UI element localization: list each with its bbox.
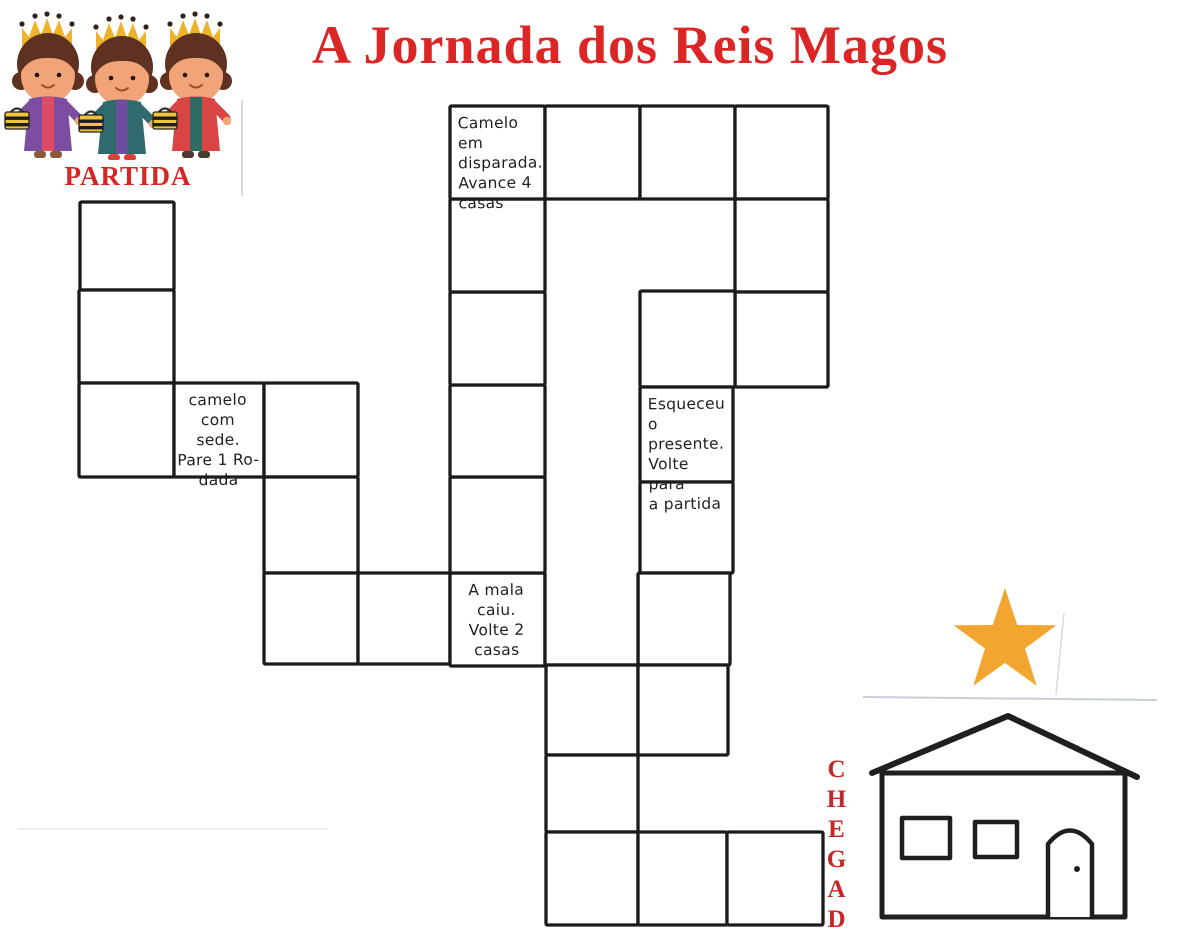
board-cell-f8 [546, 755, 638, 832]
board-cell-e4 [450, 385, 545, 477]
board-cell-h9 [727, 832, 823, 925]
board-cell-c5 [264, 477, 358, 573]
house-roof [872, 716, 1137, 777]
board-cell-g7 [638, 665, 728, 755]
board-cell-e5 [450, 477, 545, 573]
king-figure-1 [5, 11, 84, 158]
cell-instruction-forgot-gift: Esqueceuo presente.Volte paraa partida [643, 391, 729, 479]
board-cell-d6 [358, 573, 450, 664]
board-cell-g6 [638, 573, 730, 665]
bethlehem-house-illustration [872, 716, 1137, 917]
scan-artifact-line [18, 828, 328, 830]
cell-instruction-camel-thirsty: camelo comsede.Pare 1 Ro-dada [177, 387, 260, 474]
scan-artifact-line [1056, 613, 1064, 695]
board-cell-h3 [735, 292, 828, 387]
door-knob [1074, 866, 1080, 872]
page-title: A Jornada dos Reis Magos [270, 14, 990, 76]
star-of-bethlehem-icon [954, 588, 1057, 686]
house-door [1048, 831, 1092, 918]
board-cell-f9 [546, 832, 638, 925]
board-cell-f1 [545, 106, 640, 199]
cell-instruction-camel-rush: Camelo emdisparada.Avance 4casas [453, 110, 541, 196]
finish-label: CHEGADA [824, 756, 849, 934]
board-cell-h2 [735, 199, 828, 292]
three-kings-illustration [2, 2, 238, 160]
board-cell-f7 [546, 665, 638, 755]
start-label: PARTIDA [38, 161, 218, 192]
board-cell-start-3 [79, 383, 174, 477]
board-cell-f6 [545, 575, 638, 665]
finish-illustration [860, 580, 1160, 930]
board-cell-start-2 [79, 290, 174, 383]
board-cell-c4 [264, 383, 358, 477]
king-figure-2 [79, 14, 158, 160]
board-cell-h1 [735, 106, 828, 199]
cell-instruction-suitcase-fell: A malacaiu.Volte 2casas [453, 577, 541, 663]
board-cell-g9 [638, 832, 727, 925]
board-cell-start-1 [80, 202, 174, 290]
board-cell-c6 [264, 573, 358, 664]
scan-artifact-line [241, 100, 243, 196]
scan-artifact-line [863, 697, 1157, 700]
worksheet-page: camelo comsede.Pare 1 Ro-dadaA malacaiu.… [0, 0, 1200, 937]
board-cell-e3 [450, 292, 545, 385]
board-cell-g3 [640, 291, 735, 387]
king-figure-3 [153, 11, 232, 158]
board-cell-g1 [640, 106, 735, 199]
